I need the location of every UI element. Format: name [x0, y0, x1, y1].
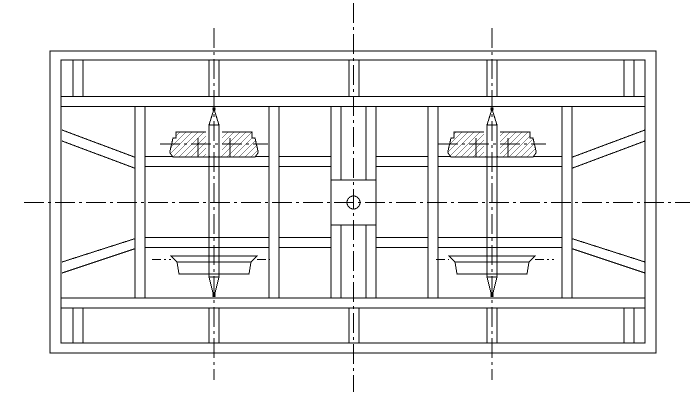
drawing-canvas	[0, 0, 693, 401]
technical-drawing	[0, 0, 693, 401]
